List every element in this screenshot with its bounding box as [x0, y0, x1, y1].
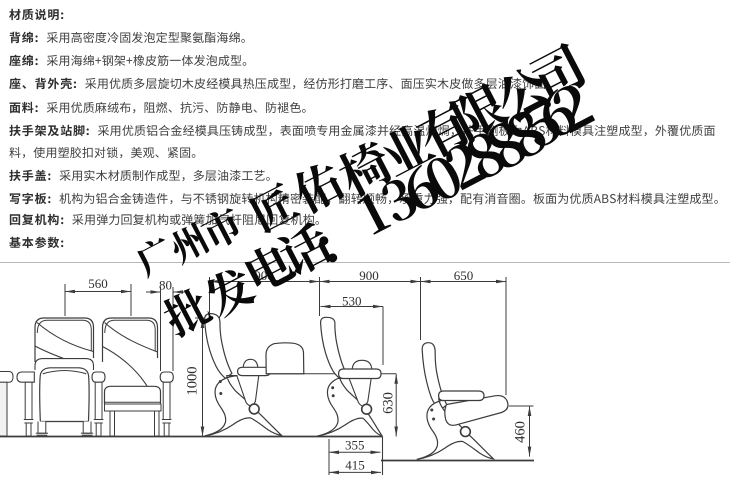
svg-text:460: 460	[513, 421, 529, 443]
svg-text:900: 900	[359, 268, 379, 283]
svg-text:560: 560	[88, 276, 108, 291]
svg-text:1000: 1000	[185, 367, 201, 396]
svg-text:630: 630	[381, 392, 397, 414]
svg-text:530: 530	[342, 294, 362, 309]
svg-text:650: 650	[454, 268, 474, 283]
svg-text:355: 355	[345, 438, 365, 453]
svg-text:415: 415	[345, 458, 365, 473]
